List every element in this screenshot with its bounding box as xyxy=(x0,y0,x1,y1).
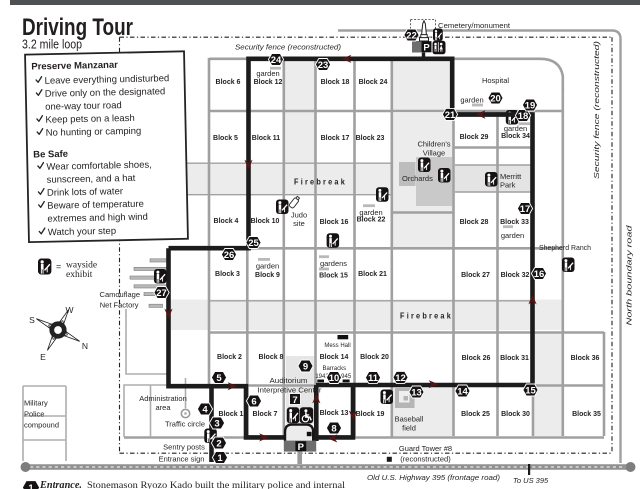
svg-text:3.2 mile loop: 3.2 mile loop xyxy=(22,38,82,52)
svg-text:19: 19 xyxy=(525,100,536,111)
svg-text:North boundary road: North boundary road xyxy=(625,224,634,325)
svg-text:Block 24: Block 24 xyxy=(359,79,388,86)
svg-text:=: = xyxy=(56,262,61,272)
svg-text:24: 24 xyxy=(271,55,282,66)
svg-text:16: 16 xyxy=(534,269,545,280)
svg-text:1: 1 xyxy=(217,453,223,464)
svg-text:Block 26: Block 26 xyxy=(462,355,491,362)
svg-text:wayside: wayside xyxy=(66,261,97,271)
svg-text:Block 33: Block 33 xyxy=(500,219,529,226)
svg-text:Block 29: Block 29 xyxy=(460,134,489,141)
svg-text:25: 25 xyxy=(248,238,259,249)
svg-text:Block 19: Block 19 xyxy=(356,411,385,418)
svg-text:26: 26 xyxy=(224,250,235,261)
svg-text:Block 8: Block 8 xyxy=(259,354,284,361)
svg-text:10: 10 xyxy=(329,373,340,384)
svg-text:12: 12 xyxy=(395,373,406,384)
svg-text:Village: Village xyxy=(423,149,445,158)
svg-text:Block 10: Block 10 xyxy=(251,218,280,225)
svg-text:Block 34: Block 34 xyxy=(501,133,530,140)
svg-text:Cemetery/monument: Cemetery/monument xyxy=(438,21,511,30)
svg-text:Wear comfortable shoes,: Wear comfortable shoes, xyxy=(46,160,152,173)
svg-text:Be Safe: Be Safe xyxy=(33,149,68,161)
svg-text:Preserve Manzanar: Preserve Manzanar xyxy=(31,60,118,73)
svg-text:Block 12: Block 12 xyxy=(254,79,283,86)
svg-text:4: 4 xyxy=(202,404,208,415)
svg-text:garden: garden xyxy=(504,124,527,133)
svg-text:22: 22 xyxy=(406,30,417,41)
svg-text:Guard Tower #8: Guard Tower #8 xyxy=(399,444,452,453)
svg-text:5: 5 xyxy=(216,373,222,384)
svg-text:Children's: Children's xyxy=(417,140,450,149)
svg-text:Sentry posts: Sentry posts xyxy=(163,443,205,452)
svg-text:N: N xyxy=(82,341,88,351)
svg-text:Auditorium: Auditorium xyxy=(270,376,308,385)
svg-text:Block 5: Block 5 xyxy=(213,135,238,142)
svg-text:Block 1: Block 1 xyxy=(219,411,244,418)
svg-text:1: 1 xyxy=(28,483,34,489)
svg-text:21: 21 xyxy=(445,110,456,121)
svg-text:Block 2: Block 2 xyxy=(217,354,242,361)
svg-text:W: W xyxy=(65,305,73,315)
svg-text:area: area xyxy=(155,403,171,412)
svg-text:Entrance sign: Entrance sign xyxy=(159,455,205,464)
svg-text:Military: Military xyxy=(24,399,48,408)
svg-text:Block 17: Block 17 xyxy=(321,135,350,142)
svg-text:Camouflage: Camouflage xyxy=(100,290,140,299)
svg-text:Block 11: Block 11 xyxy=(252,135,281,142)
svg-text:Administration: Administration xyxy=(139,394,187,403)
svg-text:site: site xyxy=(293,219,305,228)
svg-text:P: P xyxy=(423,43,430,54)
svg-text:Block 35: Block 35 xyxy=(572,411,601,418)
svg-text:(reconstructed): (reconstructed) xyxy=(400,455,451,464)
svg-text:20: 20 xyxy=(490,93,501,104)
svg-text:Keep pets on a leash: Keep pets on a leash xyxy=(45,113,134,126)
svg-text:18: 18 xyxy=(518,111,529,122)
svg-text:exhibit: exhibit xyxy=(66,270,93,280)
svg-text:Block 18: Block 18 xyxy=(321,79,350,86)
svg-text:Entrance.: Entrance. xyxy=(39,480,82,489)
svg-text:Drink lots of water: Drink lots of water xyxy=(47,186,123,199)
svg-text:8: 8 xyxy=(331,423,336,434)
svg-text:Block 25: Block 25 xyxy=(461,411,490,418)
svg-text:3: 3 xyxy=(214,418,219,429)
svg-text:Hospital: Hospital xyxy=(482,76,509,85)
svg-text:9: 9 xyxy=(303,361,308,372)
svg-text:Block 31: Block 31 xyxy=(500,355,529,362)
svg-text:7: 7 xyxy=(292,395,297,406)
svg-text:Block 20: Block 20 xyxy=(360,354,389,361)
svg-text:Block 6: Block 6 xyxy=(216,79,241,86)
svg-text:11: 11 xyxy=(368,373,379,384)
svg-text:Block 28: Block 28 xyxy=(460,219,489,226)
svg-text:2: 2 xyxy=(216,438,221,449)
svg-text:Block 32: Block 32 xyxy=(501,272,530,279)
svg-text:Block 23: Block 23 xyxy=(356,135,385,142)
svg-text:garden: garden xyxy=(501,231,524,240)
svg-text:garden: garden xyxy=(460,96,483,105)
svg-text:garden: garden xyxy=(256,262,279,271)
svg-text:27: 27 xyxy=(156,288,167,299)
svg-text:E: E xyxy=(40,352,46,362)
svg-text:Security fence (reconstructed): Security fence (reconstructed) xyxy=(592,40,601,179)
svg-text:field: field xyxy=(402,424,416,433)
svg-text:Block 21: Block 21 xyxy=(358,271,387,278)
svg-text:Baseball: Baseball xyxy=(395,415,424,424)
svg-text:Block 15: Block 15 xyxy=(319,273,348,280)
svg-text:Block 30: Block 30 xyxy=(501,411,530,418)
svg-text:Net Factory: Net Factory xyxy=(100,301,139,310)
svg-text:Block 9: Block 9 xyxy=(255,272,280,279)
svg-text:23: 23 xyxy=(318,60,329,71)
svg-text:17: 17 xyxy=(520,204,531,215)
svg-text:15: 15 xyxy=(525,385,536,396)
svg-text:Block 27: Block 27 xyxy=(461,272,490,279)
svg-text:Police: Police xyxy=(24,410,44,419)
svg-text:Shepherd Ranch: Shepherd Ranch xyxy=(539,243,591,252)
svg-text:gardens: gardens xyxy=(320,259,347,268)
svg-text:garden: garden xyxy=(359,208,382,217)
svg-text:Watch your step: Watch your step xyxy=(48,226,117,238)
svg-text:Block 13: Block 13 xyxy=(320,410,349,417)
svg-text:14: 14 xyxy=(457,386,468,397)
svg-text:Stonemason Ryozo Kado built th: Stonemason Ryozo Kado built the military… xyxy=(87,481,345,489)
svg-text:sunscreen, and a hat: sunscreen, and a hat xyxy=(47,173,136,186)
svg-text:Firebreak: Firebreak xyxy=(294,177,347,187)
svg-text:No hunting or camping: No hunting or camping xyxy=(46,126,142,139)
svg-text:S: S xyxy=(29,315,35,325)
svg-text:Orchards: Orchards xyxy=(402,174,433,183)
svg-text:Block 22: Block 22 xyxy=(357,217,386,224)
svg-text:extremes and high wind: extremes and high wind xyxy=(47,212,148,225)
svg-text:Mess Hall: Mess Hall xyxy=(324,343,350,349)
svg-text:Park: Park xyxy=(500,181,516,190)
svg-text:one-way tour road: one-way tour road xyxy=(45,100,122,113)
svg-text:Beware of temperature: Beware of temperature xyxy=(47,199,144,212)
svg-text:garden: garden xyxy=(256,69,279,78)
svg-text:Block 4: Block 4 xyxy=(214,218,239,225)
svg-text:Security fence (reconstructed): Security fence (reconstructed) xyxy=(235,43,342,52)
svg-text:Block 16: Block 16 xyxy=(320,219,349,226)
svg-text:Firebreak: Firebreak xyxy=(400,311,453,321)
svg-text:Traffic circle: Traffic circle xyxy=(165,420,205,429)
svg-text:Block 36: Block 36 xyxy=(571,355,600,362)
svg-text:compound: compound xyxy=(24,421,59,430)
svg-text:Old U.S. Highway 395 (frontage: Old U.S. Highway 395 (frontage road) xyxy=(367,473,501,482)
svg-text:To US 395: To US 395 xyxy=(513,476,549,485)
svg-text:6: 6 xyxy=(251,396,256,407)
svg-text:P: P xyxy=(298,442,305,453)
svg-text:Block 7: Block 7 xyxy=(253,411,278,418)
svg-text:13: 13 xyxy=(411,387,422,398)
svg-text:Block 3: Block 3 xyxy=(215,271,240,278)
svg-text:Block 14: Block 14 xyxy=(320,354,349,361)
